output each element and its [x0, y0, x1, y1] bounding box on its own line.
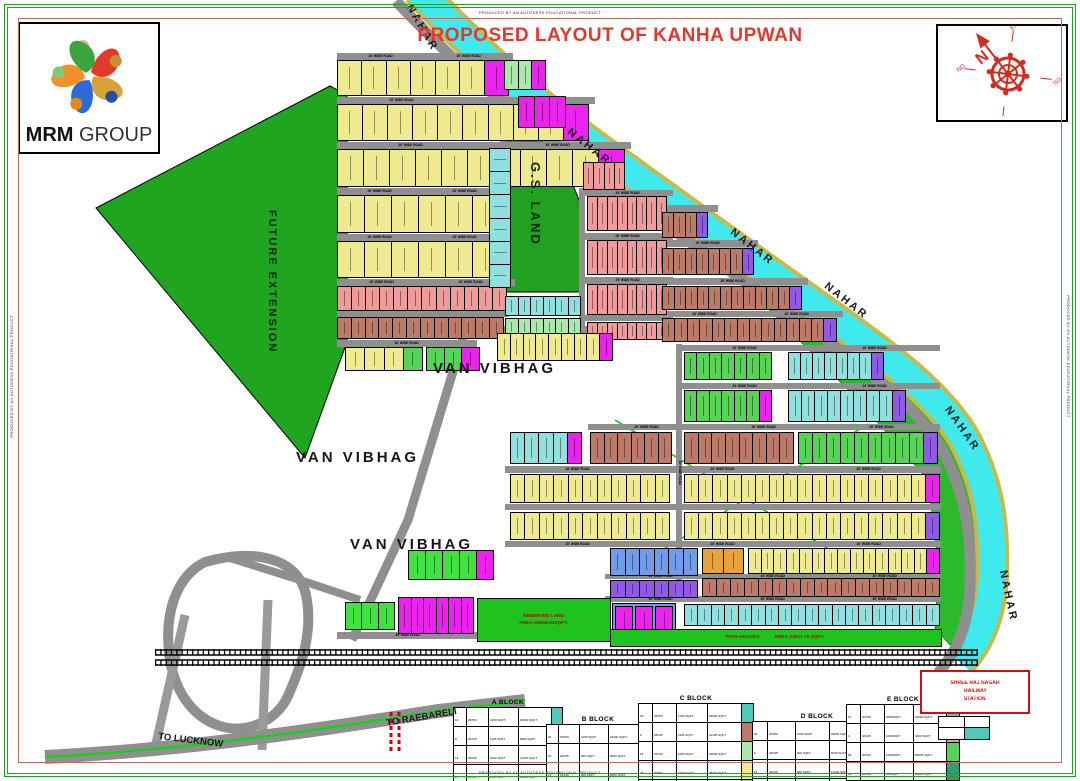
logo-pinwheel-icon: [22, 24, 156, 122]
plot-strip: [788, 352, 884, 380]
plot: [618, 323, 628, 339]
plot: [779, 605, 792, 625]
plot: [869, 475, 883, 502]
table-cell: 14: [454, 746, 467, 765]
table-cell-text: 15000 SQFT: [709, 753, 726, 756]
plot-strip: [684, 390, 772, 422]
plot: [759, 579, 773, 596]
table-cell: 900 SQFT: [579, 744, 608, 763]
plot: [618, 241, 628, 274]
plot: [380, 287, 394, 310]
plot: [489, 105, 514, 140]
plot: [411, 61, 435, 95]
table-cell-text: 28: [640, 772, 643, 775]
plot: [419, 242, 446, 277]
plot: [632, 433, 646, 463]
table-cell: 1000 SQFT: [796, 722, 830, 741]
plot: [732, 287, 744, 309]
plot: [824, 319, 835, 341]
table-cell-text: 800 SQFT: [797, 771, 811, 774]
plot: [525, 433, 539, 463]
plot: [615, 163, 624, 189]
plot: [421, 318, 435, 338]
plot: [519, 297, 532, 315]
plot: [568, 433, 581, 463]
plot: [594, 163, 604, 189]
plot: [647, 241, 657, 274]
table-cell: 600SQFT: [884, 762, 913, 781]
plot: [813, 433, 827, 463]
plot: [926, 475, 939, 502]
plot: [762, 319, 774, 341]
table-cell-text: 1250 SQFT: [490, 719, 506, 722]
watermark-left: PRODUCED BY AN AUTODESK EDUCATIONAL PROD…: [10, 315, 15, 437]
plot: [462, 598, 474, 633]
plot-strip: [504, 60, 546, 90]
plot: [663, 287, 675, 309]
plot: [436, 61, 460, 95]
plot: [779, 287, 791, 309]
plot: [841, 391, 854, 421]
table-cell: 1000SQFT: [884, 743, 913, 762]
plot-strip: [684, 352, 772, 380]
plot: [717, 579, 731, 596]
plot: [365, 196, 392, 232]
block-table-grid: 1825X501250 SQFT22500 SQFT925X451125 SQF…: [638, 703, 754, 781]
plot: [910, 433, 924, 463]
plot: [855, 433, 869, 463]
plot: [697, 353, 709, 379]
plot: [787, 549, 800, 573]
plot: [883, 475, 897, 502]
table-cell-text: 16: [455, 719, 458, 722]
plot: [490, 265, 510, 287]
plot: [525, 513, 539, 539]
plot: [338, 318, 352, 338]
layout-plan-canvas: 20' WIDE ROAD20' WIDE ROAD20' WIDE ROAD2…: [0, 0, 1080, 781]
plot: [413, 105, 438, 140]
plot: [685, 391, 697, 421]
road: 20' WIDE ROAD20' WIDE ROAD: [680, 383, 940, 389]
plot: [698, 605, 711, 625]
plot-strip: [510, 512, 670, 540]
plot: [869, 433, 883, 463]
plot: [385, 348, 404, 370]
plot: [864, 549, 877, 573]
block-table-title: A BLOCK: [453, 699, 563, 706]
plot: [618, 197, 628, 230]
plot: [762, 549, 775, 573]
plot: [815, 579, 829, 596]
plot: [346, 348, 365, 370]
plot: [898, 579, 912, 596]
plot: [562, 334, 575, 360]
plot-strip: [748, 548, 940, 574]
plot: [697, 249, 708, 274]
plot: [799, 433, 813, 463]
road: 20' WIDE ROAD: [337, 340, 477, 347]
plot: [770, 513, 784, 539]
plot: [699, 513, 713, 539]
table-cell-text: 1000 SQFT: [678, 772, 694, 775]
plot: [688, 319, 700, 341]
road-label: 20' WIDE ROAD: [369, 55, 393, 58]
plot: [392, 196, 419, 232]
table-cell-text: 1000 SQFT: [581, 736, 597, 739]
railway-station-box: SHREE RAJ NAGAR RAILWAY STATION: [920, 670, 1030, 714]
road-label: 20' WIDE ROAD: [566, 468, 590, 471]
table-cell-text: 28000 SQFT: [709, 772, 726, 775]
plot-strip: [497, 333, 613, 361]
plot: [775, 319, 787, 341]
table-cell-text: 25X45: [468, 738, 477, 741]
compass-point-so: SO: [1053, 77, 1062, 87]
plot: [490, 149, 510, 172]
plot-strip: [587, 240, 667, 275]
plot: [424, 598, 437, 633]
road-label: 40' WIDE ROAD: [396, 634, 420, 637]
plot: [426, 551, 443, 579]
plot: [721, 287, 733, 309]
table-color-swatch: [947, 762, 960, 781]
plot: [841, 433, 855, 463]
table-cell: 26: [454, 765, 467, 781]
road: 20' WIDE ROAD20' WIDE ROAD: [337, 188, 507, 195]
plot: [813, 513, 827, 539]
company-logo: MRM GROUP: [18, 22, 160, 154]
table-row: 6620X501000SQFT66000 SQFT: [847, 743, 960, 762]
table-cell-text: 1000 SQFT: [490, 757, 506, 760]
table-cell: 48: [847, 762, 861, 781]
road: 20' WIDE ROAD20' WIDE ROAD: [658, 311, 843, 317]
table-cell: 15000 SQFT: [707, 742, 741, 761]
plot: [787, 579, 801, 596]
road-label: 30' WIDE ROAD: [677, 461, 680, 485]
table-cell: 1125 SQFT: [676, 723, 707, 742]
table-cell: 900 SQFT: [796, 741, 830, 760]
plot: [587, 334, 600, 360]
table-cell-text: 24000 SQFT: [915, 716, 932, 719]
plot: [399, 598, 412, 633]
table-cell-text: 900 SQFT: [581, 755, 595, 758]
future-extension-label: FUTURE EXTENSION: [266, 210, 278, 353]
compass-rose-icon: N NO EA SO WE: [938, 26, 1062, 116]
plot: [352, 318, 366, 338]
plot: [663, 213, 674, 237]
plot: [362, 61, 386, 95]
plot: [479, 287, 493, 310]
road-label: 20' WIDE ROAD: [452, 236, 476, 239]
plot: [363, 105, 388, 140]
plot: [813, 475, 827, 502]
table-cell: 1125 SQFT: [489, 727, 519, 746]
plot: [511, 513, 525, 539]
table-cell-text: 28800 SQFT: [915, 773, 932, 776]
plot: [800, 549, 813, 573]
plot: [498, 334, 511, 360]
table-cell-text: 20X45: [769, 752, 778, 755]
station-name-line3: STATION: [964, 696, 986, 703]
plot: [756, 513, 770, 539]
table-cell-text: 1000 SQFT: [490, 776, 506, 779]
plot: [446, 196, 473, 232]
block-table-title: C BLOCK: [638, 695, 754, 702]
plot: [647, 197, 657, 230]
table-row: 2820X501000 SQFT28000 SQFT: [639, 761, 754, 780]
plot: [490, 242, 510, 265]
table-cell: 20X50: [768, 722, 796, 741]
plot: [647, 285, 657, 314]
plot: [685, 513, 699, 539]
plot: [442, 150, 468, 186]
table-row: 1825X501250 SQFT22500 SQFT: [639, 704, 754, 723]
table-cell-text: 1000 SQFT: [797, 733, 813, 736]
plot: [637, 323, 647, 339]
plot-strip: [489, 148, 511, 288]
plot: [640, 581, 655, 597]
plot: [828, 391, 841, 421]
table-cell-text: 66000 SQFT: [915, 754, 932, 757]
table-cell-text: 20X45: [560, 755, 569, 758]
plot: [686, 249, 697, 274]
plot: [346, 603, 362, 629]
plot: [825, 549, 838, 573]
plot: [460, 551, 477, 579]
plot: [747, 353, 759, 379]
reserved-land-area: RESERVED LAND AREA-39848.93SQFT.: [477, 598, 611, 642]
plot: [739, 605, 752, 625]
table-cell-text: 25X50: [654, 715, 663, 718]
table-cell: 9600 SQFT: [609, 763, 641, 781]
table-cell-text: 26: [455, 776, 458, 779]
plot-strip: [337, 241, 500, 278]
plot: [812, 319, 824, 341]
table-cell: 20X50: [558, 725, 579, 744]
plot: [913, 605, 926, 625]
plot: [435, 318, 449, 338]
road-label: 20' WIDE ROAD: [733, 384, 757, 387]
watermark-top: PRODUCED BY AN AUTODESK EDUCATIONAL PROD…: [479, 11, 601, 16]
plot: [549, 334, 562, 360]
plot: [747, 391, 759, 421]
plot: [451, 287, 465, 310]
table-cell: 20: [753, 722, 768, 741]
table-cell-text: 18: [640, 715, 643, 718]
plot: [709, 249, 720, 274]
plot: [437, 287, 451, 310]
table-cell: 25X45: [652, 723, 676, 742]
plot: [569, 475, 583, 502]
road: 20' WIDE ROAD20' WIDE ROAD20' WIDE ROAD: [505, 541, 941, 547]
table-cell-text: 25X40: [468, 757, 477, 760]
plot: [912, 513, 926, 539]
plot: [547, 150, 573, 186]
road: 25' WIDE ROAD: [658, 278, 808, 285]
plot: [655, 581, 670, 597]
plot: [753, 433, 767, 463]
plot: [409, 551, 426, 579]
plot: [915, 549, 928, 573]
plot: [880, 391, 893, 421]
plot: [912, 579, 926, 596]
table-cell: 25X50: [652, 704, 676, 723]
table-cell-text: 1250 SQFT: [678, 715, 694, 718]
plot: [750, 319, 762, 341]
plot: [465, 287, 479, 310]
table-cell: 1000 SQFT: [489, 746, 519, 765]
road: 20' WIDE ROAD20' WIDE ROAD: [680, 345, 940, 351]
plot: [802, 391, 815, 421]
plot: [618, 433, 632, 463]
plot: [366, 287, 380, 310]
plot: [524, 334, 537, 360]
plot: [893, 391, 905, 421]
plot: [773, 579, 787, 596]
plot: [760, 391, 771, 421]
table-cell-text: 1125 SQFT: [490, 738, 505, 741]
plot-strip: [337, 317, 504, 339]
road-label: 20' WIDE ROAD: [566, 542, 590, 545]
plot: [663, 319, 675, 341]
plot: [628, 323, 638, 339]
road-label: 20' WIDE ROAD: [395, 342, 419, 345]
plot: [393, 318, 407, 338]
plot-strip: [662, 212, 708, 238]
block-table: C BLOCK1825X501250 SQFT22500 SQFT925X451…: [638, 695, 754, 781]
plot-strip: [505, 296, 581, 316]
logo-text-bold: MRM: [26, 124, 74, 146]
table-cell-text: 20X50: [862, 754, 871, 757]
table-cell-text: 4: [848, 735, 850, 738]
plot: [365, 242, 392, 277]
plot-strip: [587, 284, 667, 315]
table-cell-text: 48: [848, 773, 851, 776]
table-cell-text: 1125 SQFT: [678, 734, 693, 737]
plot: [490, 219, 510, 242]
plot: [352, 287, 366, 310]
plot: [612, 513, 626, 539]
plot-strip: [587, 196, 667, 231]
plot: [813, 549, 826, 573]
plot-strip: [684, 512, 940, 540]
road-label: 25' WIDE ROAD: [616, 279, 640, 282]
plot: [598, 475, 612, 502]
road: 20' WIDE ROAD20' WIDE ROAD: [337, 53, 513, 60]
road-label: 20' WIDE ROAD: [711, 468, 735, 471]
page-title: PROPOSED LAYOUT OF KANHA UPWAN: [390, 25, 830, 47]
road-label: 20' WIDE ROAD: [785, 312, 809, 315]
plot: [848, 353, 860, 379]
road-label: 20' WIDE ROAD: [863, 346, 887, 349]
compass-box: N NO EA SO WE: [936, 24, 1068, 122]
plot: [766, 605, 779, 625]
table-cell: 28800 SQFT: [914, 762, 947, 781]
plot: [611, 581, 626, 597]
plot: [872, 353, 883, 379]
plot: [806, 605, 819, 625]
table-cell: 24: [547, 725, 559, 744]
plot-strip: [684, 474, 940, 503]
table-cell-text: 14: [455, 757, 458, 760]
plot: [926, 513, 939, 539]
road-label: 20' WIDE ROAD: [367, 190, 391, 193]
plot: [884, 579, 898, 596]
plot: [798, 513, 812, 539]
table-cell-text: 9: [640, 734, 642, 737]
table-cell: 1000 SQFT: [676, 761, 707, 780]
plot: [713, 475, 727, 502]
plot: [387, 61, 411, 95]
plot: [404, 348, 422, 370]
table-cell: 20X40: [768, 760, 796, 779]
plot: [710, 391, 722, 421]
plot: [338, 196, 365, 232]
table-cell: 1250 SQFT: [676, 704, 707, 723]
plot: [855, 513, 869, 539]
plot: [669, 549, 684, 575]
table-row: 2420X501000 SQFT24000 SQFT: [547, 725, 650, 744]
plot: [801, 353, 813, 379]
table-cell-text: 1000 SQFT: [678, 753, 694, 756]
plot-strip: [337, 149, 625, 187]
road-label: 20' WIDE ROAD: [856, 542, 880, 545]
plot: [416, 150, 442, 186]
plot-strip: [662, 248, 754, 275]
plot: [685, 433, 699, 463]
plot: [684, 581, 698, 597]
road-label: 20' WIDE ROAD: [369, 281, 393, 284]
road: [658, 205, 718, 212]
plot: [926, 579, 939, 596]
road-label: 20' WIDE ROAD: [398, 144, 422, 147]
table-cell-text: 14: [754, 771, 757, 774]
plot: [379, 603, 394, 629]
plot: [535, 97, 551, 127]
table-cell-text: 20000 SQFT: [520, 719, 537, 722]
plot: [712, 605, 725, 625]
plot: [591, 433, 605, 463]
table-cell-text: 40X25: [862, 735, 871, 738]
road-label: 20' WIDE ROAD: [458, 281, 482, 284]
table-row: 1525X401000 SQFT15000 SQFT: [639, 742, 754, 761]
plot: [598, 285, 608, 314]
plot: [780, 433, 793, 463]
plot: [924, 433, 937, 463]
table-cell: 9: [639, 723, 653, 742]
plot: [685, 605, 698, 625]
plot: [725, 319, 737, 341]
plot-strip: [610, 548, 698, 576]
plot: [598, 197, 608, 230]
plot: [365, 348, 384, 370]
table-cell: 20X30: [861, 762, 884, 781]
road-label: 20' WIDE ROAD: [863, 384, 887, 387]
road: 20' WIDE ROAD20' WIDE ROAD20' WIDE ROAD: [588, 424, 940, 430]
plot: [827, 513, 841, 539]
plot: [645, 433, 659, 463]
plot: [767, 433, 781, 463]
plot: [841, 513, 855, 539]
plot: [493, 287, 506, 310]
plot: [867, 391, 880, 421]
table-cell-text: 20X50: [769, 733, 778, 736]
table-cell-text: 15: [640, 753, 643, 756]
plot-strip: [345, 347, 423, 371]
plot: [742, 475, 756, 502]
table-cell-text: 9000 SQFT: [520, 738, 536, 741]
plot: [575, 334, 588, 360]
road-label: 20' WIDE ROAD: [367, 236, 391, 239]
